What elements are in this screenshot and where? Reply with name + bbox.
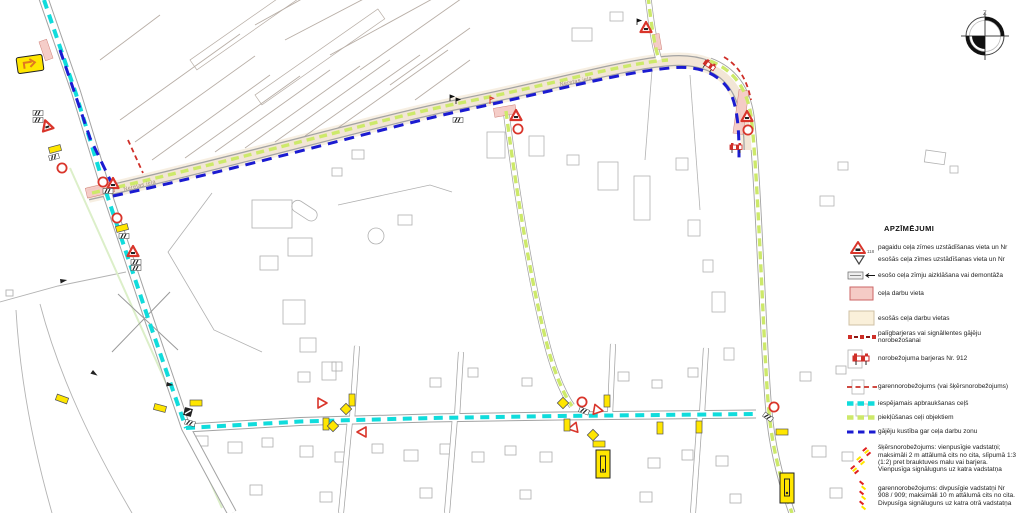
legend-row-temp-sign: 118 pagaidu ceļa zīmes uzstādīšanas viet… — [846, 240, 1016, 255]
cross-posts-icon — [846, 443, 878, 475]
works-area-swatch — [846, 286, 878, 302]
legend-row-barrier-912: norobežojuma barjeras Nr. 912 — [846, 352, 1016, 366]
legend-row-sign-removal: esošo ceļa zīmju aizklāšana vai demontāž… — [846, 270, 1016, 282]
road-fills — [42, 0, 792, 513]
legend-row-long-posts: garennorobežojums: divpusīgie vadstatņi … — [846, 480, 1016, 512]
traffic-signs — [16, 19, 794, 503]
give-way-sign-icon — [318, 398, 327, 408]
building-outlines-centre — [168, 150, 452, 380]
parcel-boundaries — [0, 272, 132, 513]
legend-panel: APZĪMĒJUMI 118 pagaidu ceļa zīmes uzstād… — [846, 224, 1024, 513]
legend-row-access-route: piekļūšanas ceļi objektiem — [846, 414, 1016, 421]
legend-row-cross-posts: šķērsnorobežojums: vienpusīgie vadstatņi… — [846, 443, 1016, 475]
no-entry-sign-icon — [98, 177, 107, 186]
existing-sign-icon — [846, 254, 878, 266]
compass-icon: Z — [961, 11, 1009, 60]
existing-works-swatch — [846, 310, 878, 327]
building-outlines-south — [196, 436, 853, 503]
no-entry-sign-icon — [513, 124, 522, 133]
legend-title: APZĪMĒJUMI — [884, 224, 934, 233]
sign-cover-icon — [846, 270, 878, 282]
give-way-sign-icon — [357, 427, 366, 437]
roadworks-sign-icon: 118 — [846, 240, 878, 255]
long-posts-icon — [846, 480, 878, 512]
traffic-scheme-page: Neretas iela Neretas iela — [0, 0, 1024, 513]
no-entry-sign-icon — [769, 402, 778, 411]
legend-row-aux-barriers: palīgbarjeras vai signāllentes gājēju no… — [846, 330, 1016, 345]
detour-board-sign — [16, 54, 44, 73]
detour-scheme-board — [780, 473, 794, 503]
no-entry-sign-icon — [577, 397, 586, 406]
legend-row-pedestrian-route: gājēju kustība gar ceļa darbu zonu — [846, 428, 1016, 435]
no-entry-sign-icon — [57, 163, 66, 172]
access-route-swatch — [846, 414, 878, 421]
legend-row-detour-route: iespējamais apbraukšanas ceļš — [846, 400, 1016, 407]
legend-row-existing-works: esošās ceļa darbu vietas — [846, 310, 1016, 327]
barrier-912-icon — [730, 143, 742, 153]
yellow-plate-sign — [48, 145, 788, 447]
detour-scheme-board — [596, 450, 610, 478]
barrier-912-icon — [846, 352, 878, 366]
hatched-buildings-area — [100, 0, 470, 160]
no-entry-sign-icon — [743, 125, 752, 134]
barrier-line-swatch — [846, 384, 878, 390]
detour-route-swatch — [846, 400, 878, 407]
legend-row-long-barrier: garennorobežojums (vai šķērsnorobežojums… — [846, 383, 1016, 390]
striped-marker-sign — [33, 111, 774, 427]
legend-row-existing-sign: esošās ceļa zīmes uzstādīšanas vieta un … — [846, 254, 1016, 266]
road-casings — [42, 0, 792, 513]
compass-north-label: Z — [983, 11, 987, 17]
aux-barrier-swatch — [846, 333, 878, 341]
no-entry-sign-icon — [112, 213, 121, 222]
legend-row-works-area: ceļa darbu vieta — [846, 286, 1016, 302]
pedestrian-route-swatch — [846, 429, 878, 435]
